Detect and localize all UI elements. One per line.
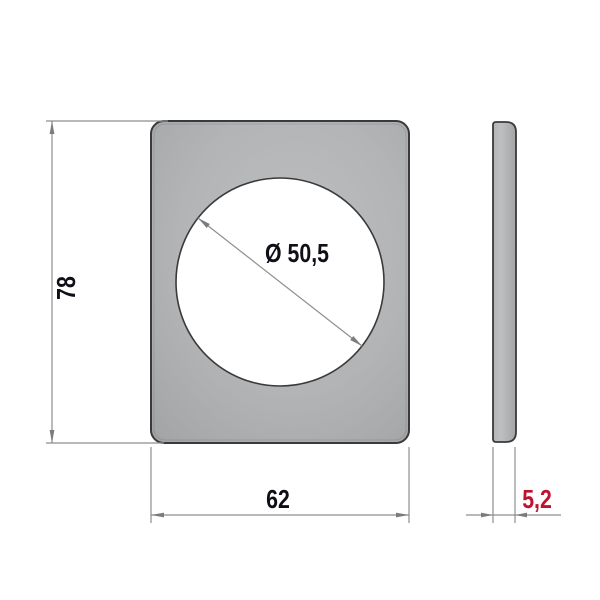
technical-drawing-canvas: 78 62 Ø 50,5 5,2 (0, 0, 600, 600)
plate-side-face (493, 122, 516, 442)
arrowhead-up-icon (50, 121, 55, 134)
dimension-width: 62 (151, 447, 409, 523)
dimension-thickness: 5,2 (466, 447, 561, 523)
arrowhead-down-icon (50, 430, 55, 443)
dimension-height: 78 (46, 121, 168, 443)
side-view (493, 122, 516, 442)
arrowhead-right-icon (396, 513, 409, 518)
drawing-page: 78 62 Ø 50,5 5,2 (0, 0, 600, 600)
dimension-thickness-label: 5,2 (522, 485, 552, 515)
dimension-hole-diameter-label: Ø 50,5 (265, 239, 329, 269)
dimension-height-label: 78 (52, 276, 82, 300)
arrowhead-left-icon (151, 513, 164, 518)
dimension-width-label: 62 (266, 485, 290, 515)
arrowhead-inward-right-icon (481, 513, 493, 518)
